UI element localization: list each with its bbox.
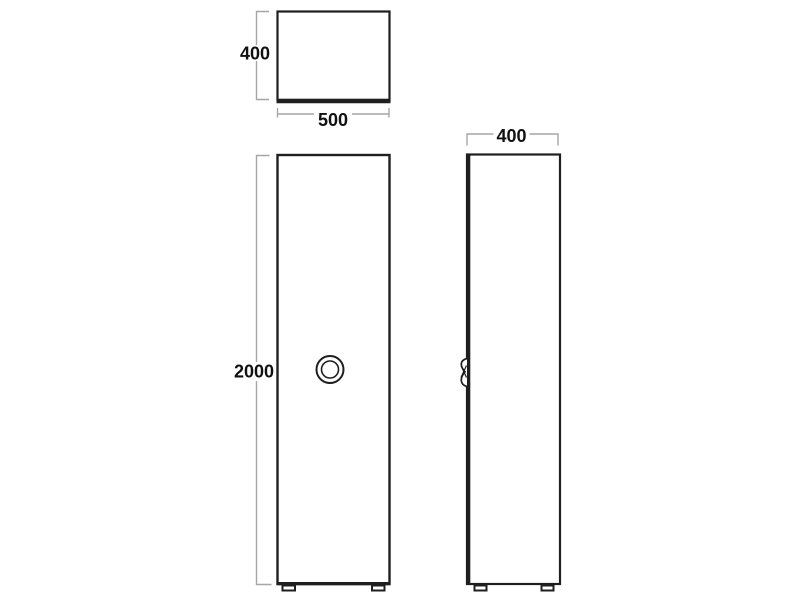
- dim-top-width: 500: [278, 108, 390, 130]
- front-view-outline: [278, 155, 390, 584]
- dim-side-depth: 400: [467, 126, 558, 146]
- technical-drawing: 400 500 2000: [0, 0, 800, 600]
- dim-label-top-width: 500: [318, 110, 348, 130]
- dim-front-height: 2000: [234, 156, 274, 585]
- dim-top-height: 400: [240, 12, 270, 100]
- front-foot-left: [283, 586, 296, 591]
- dim-line-left: [467, 134, 494, 146]
- dim-line-upper: [257, 156, 270, 363]
- side-view-outline: [467, 155, 560, 585]
- dim-line-lower: [257, 381, 272, 585]
- front-foot-right: [372, 586, 385, 591]
- top-view: [277, 12, 391, 102]
- dim-line-upper: [257, 12, 270, 46]
- drawing-canvas: 400 500 2000: [0, 0, 800, 600]
- dim-line-lower: [257, 61, 270, 100]
- dim-label-top-height: 400: [240, 44, 270, 64]
- side-view: [461, 154, 560, 591]
- top-view-outline: [278, 12, 390, 101]
- dim-line-right: [530, 134, 559, 146]
- side-foot-left: [475, 586, 487, 591]
- side-foot-right: [542, 586, 554, 591]
- dim-label-front-height: 2000: [234, 362, 274, 382]
- front-view: [277, 155, 390, 591]
- dim-label-side-depth: 400: [496, 126, 526, 146]
